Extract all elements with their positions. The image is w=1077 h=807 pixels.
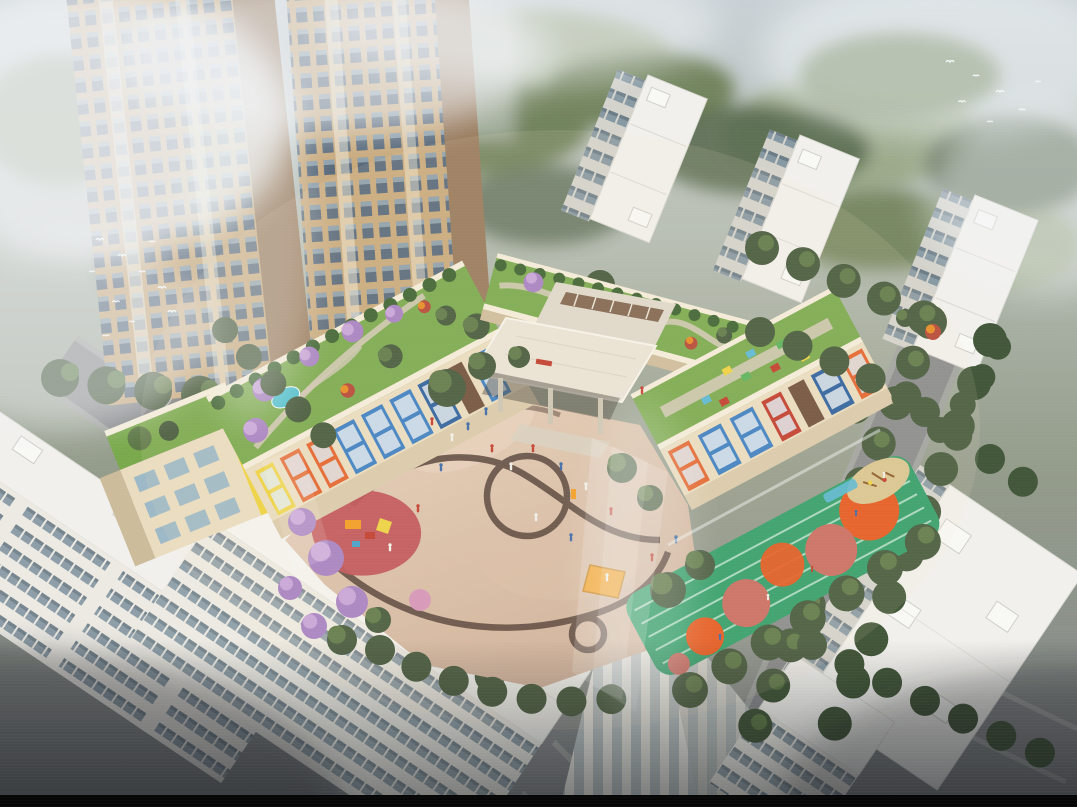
- aerial-rendering: [0, 0, 1077, 807]
- vignette: [0, 640, 1077, 807]
- letterbox-bar: [0, 795, 1077, 807]
- scene-svg: [0, 0, 1077, 807]
